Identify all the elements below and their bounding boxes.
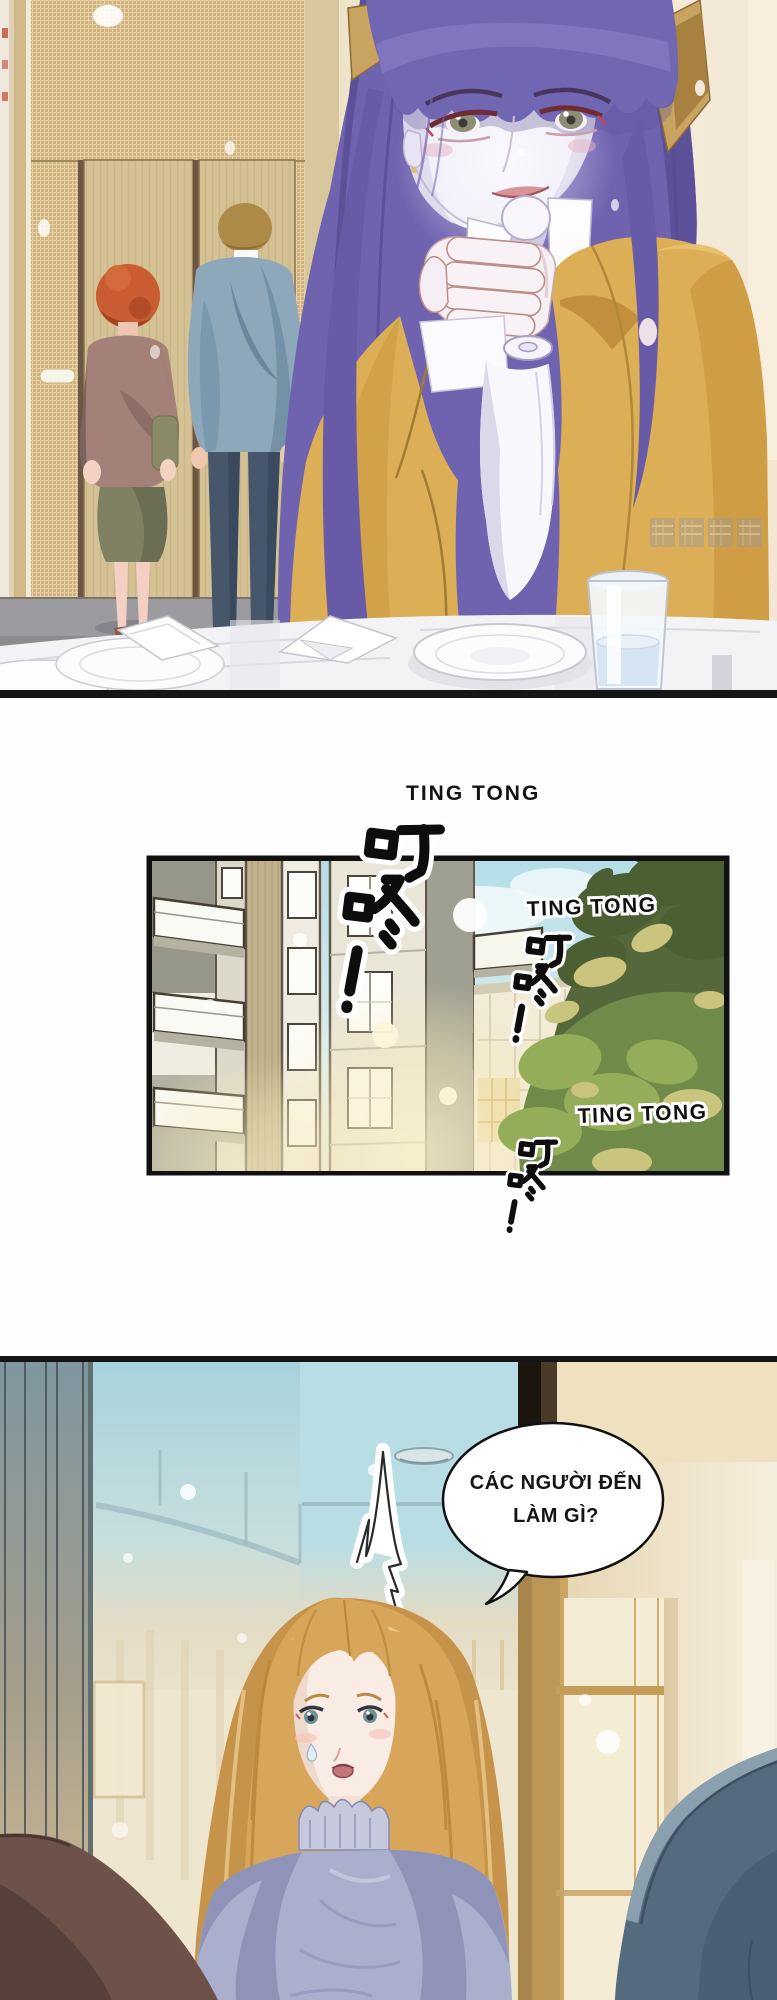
svg-text:CÁC NGƯỜI ĐẾN: CÁC NGƯỜI ĐẾN bbox=[470, 1470, 642, 1494]
svg-text:TING TONG: TING TONG bbox=[526, 893, 657, 921]
svg-text:TING TONG: TING TONG bbox=[577, 1100, 708, 1128]
svg-text:LÀM GÌ?: LÀM GÌ? bbox=[513, 1504, 599, 1527]
svg-text:TING TONG: TING TONG bbox=[406, 782, 540, 805]
